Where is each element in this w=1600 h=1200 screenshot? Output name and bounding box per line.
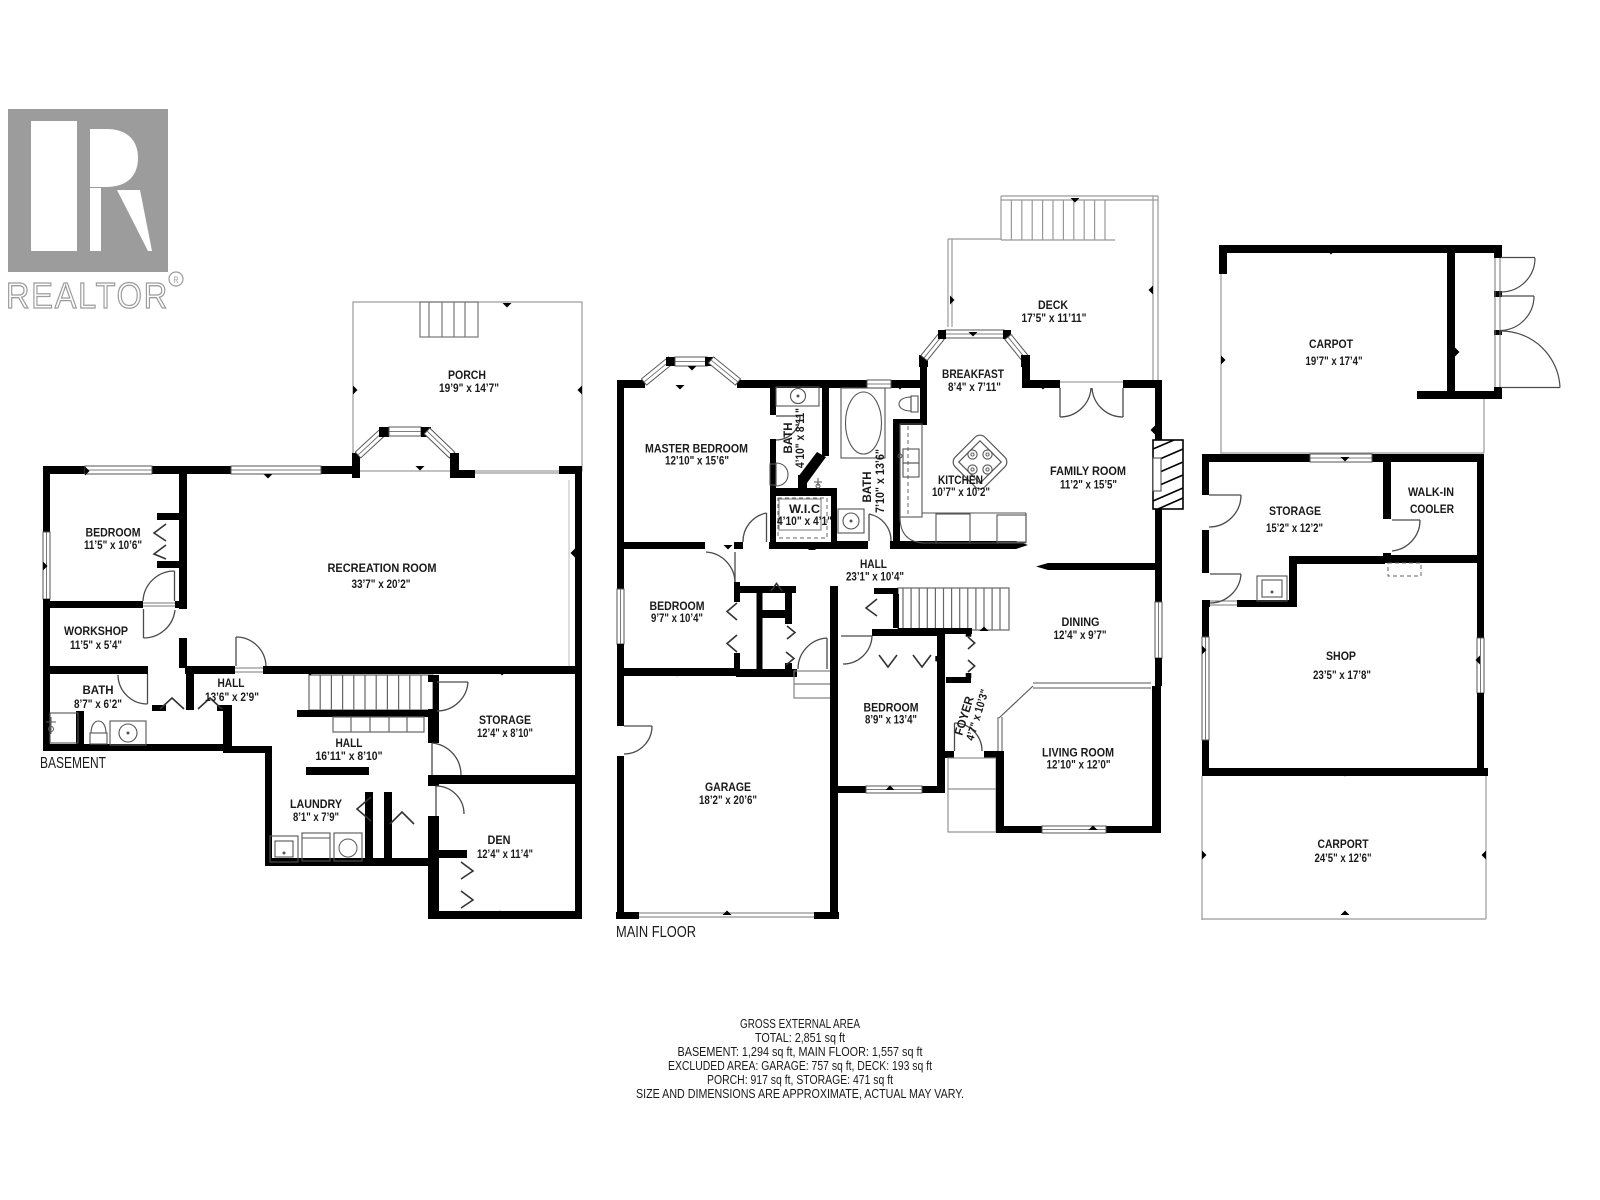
- svg-text:11’5" x 5’4": 11’5" x 5’4": [70, 638, 122, 652]
- svg-text:12’4" x 9’7": 12’4" x 9’7": [1054, 628, 1107, 642]
- svg-text:24’5" x 12’6": 24’5" x 12’6": [1315, 851, 1372, 865]
- svg-text:GROSS EXTERNAL AREA: GROSS EXTERNAL AREA: [740, 1016, 860, 1031]
- svg-text:REALTOR: REALTOR: [6, 275, 169, 316]
- svg-text:23’5" x 17’8": 23’5" x 17’8": [1313, 668, 1371, 682]
- svg-text:DEN: DEN: [488, 833, 511, 847]
- svg-text:19’7" x 17’4": 19’7" x 17’4": [1306, 354, 1363, 368]
- svg-text:18’2" x 20’6": 18’2" x 20’6": [699, 793, 757, 807]
- svg-text:9’7" x 10’4": 9’7" x 10’4": [651, 611, 703, 625]
- svg-text:12’10" x 12’0": 12’10" x 12’0": [1047, 758, 1111, 772]
- svg-text:COOLER: COOLER: [1410, 502, 1454, 516]
- svg-text:4’10" x 8’11": 4’10" x 8’11": [793, 408, 807, 468]
- svg-text:GARAGE: GARAGE: [705, 780, 751, 794]
- svg-text:BATH: BATH: [83, 683, 114, 697]
- svg-text:WORKSHOP: WORKSHOP: [64, 624, 128, 638]
- svg-text:13’6" x 2’9": 13’6" x 2’9": [205, 690, 259, 704]
- svg-text:11’2" x 15’5": 11’2" x 15’5": [1060, 478, 1117, 492]
- svg-text:WALK-IN: WALK-IN: [1408, 485, 1454, 499]
- svg-text:11’5" x 10’6": 11’5" x 10’6": [84, 538, 142, 552]
- svg-text:CARPORT: CARPORT: [1318, 837, 1369, 851]
- svg-text:12’4" x 11’4": 12’4" x 11’4": [477, 847, 533, 861]
- svg-text:PORCH: PORCH: [448, 368, 486, 382]
- svg-text:23’1" x 10’4": 23’1" x 10’4": [846, 570, 904, 584]
- svg-text:PORCH: 917 sq ft, STORAGE: 471: PORCH: 917 sq ft, STORAGE: 471 sq ft: [707, 1072, 893, 1087]
- svg-text:BATH: BATH: [860, 472, 874, 503]
- svg-text:SHOP: SHOP: [1326, 649, 1356, 663]
- svg-text:12’4" x 8’10": 12’4" x 8’10": [477, 726, 533, 740]
- svg-text:7’10" x 13’6": 7’10" x 13’6": [873, 449, 887, 513]
- svg-text:33’7" x 20’2": 33’7" x 20’2": [352, 577, 411, 591]
- svg-text:8’7" x 6’2": 8’7" x 6’2": [74, 697, 122, 711]
- svg-text:EXCLUDED AREA: GARAGE: 757 sq: EXCLUDED AREA: GARAGE: 757 sq ft, DECK: …: [668, 1058, 932, 1073]
- svg-text:RECREATION ROOM: RECREATION ROOM: [328, 561, 437, 575]
- svg-text:LAUNDRY: LAUNDRY: [290, 797, 342, 811]
- svg-text:DECK: DECK: [1038, 298, 1068, 312]
- svg-text:BREAKFAST: BREAKFAST: [942, 367, 1004, 381]
- svg-text:MAIN FLOOR: MAIN FLOOR: [616, 924, 696, 941]
- svg-text:BASEMENT: 1,294 sq ft, MAIN FL: BASEMENT: 1,294 sq ft, MAIN FLOOR: 1,557…: [678, 1044, 923, 1059]
- svg-text:STORAGE: STORAGE: [1269, 504, 1321, 518]
- svg-text:DINING: DINING: [1062, 615, 1100, 629]
- svg-text:10’7" x 10’2": 10’7" x 10’2": [932, 485, 990, 499]
- svg-text:17’5" x 11’11": 17’5" x 11’11": [1022, 311, 1087, 325]
- svg-text:15’2" x 12’2": 15’2" x 12’2": [1266, 521, 1323, 535]
- svg-text:19’9" x 14’7": 19’9" x 14’7": [439, 381, 499, 395]
- svg-text:8’9" x 13’4": 8’9" x 13’4": [865, 713, 917, 727]
- svg-text:HALL: HALL: [336, 736, 363, 750]
- svg-text:16’11" x 8’10": 16’11" x 8’10": [316, 749, 383, 763]
- svg-text:8’1" x 7’9": 8’1" x 7’9": [293, 810, 339, 824]
- svg-text:HALL: HALL: [218, 676, 245, 690]
- svg-text:TOTAL: 2,851 sq ft: TOTAL: 2,851 sq ft: [755, 1030, 845, 1045]
- svg-text:SIZE AND DIMENSIONS ARE APPROX: SIZE AND DIMENSIONS ARE APPROXIMATE, ACT…: [636, 1086, 964, 1101]
- svg-text:4’10" x 4’1": 4’10" x 4’1": [777, 514, 832, 528]
- svg-text:12’10" x 15’6": 12’10" x 15’6": [665, 454, 729, 468]
- svg-text:BASEMENT: BASEMENT: [40, 755, 106, 772]
- svg-text:CARPOT: CARPOT: [1309, 337, 1353, 351]
- svg-text:8’4" x 7’11": 8’4" x 7’11": [948, 380, 1001, 394]
- svg-text:FAMILY ROOM: FAMILY ROOM: [1050, 464, 1126, 478]
- svg-text:R: R: [174, 275, 179, 285]
- svg-text:STORAGE: STORAGE: [479, 713, 531, 727]
